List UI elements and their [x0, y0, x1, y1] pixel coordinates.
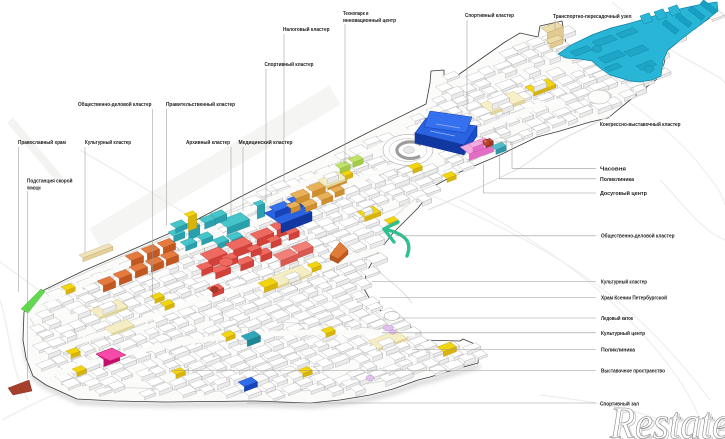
svg-text:Транспортно-пересадочный узел: Транспортно-пересадочный узел	[553, 13, 632, 20]
svg-text:Правительственный кластер: Правительственный кластер	[166, 101, 236, 108]
svg-text:Конгрессно-выставочный кластер: Конгрессно-выставочный кластер	[600, 121, 681, 128]
svg-text:инновационный центр: инновационный центр	[343, 17, 397, 24]
svg-text:помощи: помощи	[27, 185, 41, 191]
svg-text:Культурный кластер: Культурный кластер	[85, 139, 132, 146]
svg-text:Спортивный кластер: Спортивный кластер	[265, 61, 315, 68]
svg-text:Подстанция скорой: Подстанция скорой	[27, 178, 73, 185]
svg-text:Спортивный кластер: Спортивный кластер	[465, 12, 515, 19]
svg-text:Медицинский кластер: Медицинский кластер	[239, 139, 294, 146]
svg-text:Поликлиника: Поликлиника	[600, 177, 635, 183]
svg-text:Поликлиника: Поликлиника	[601, 347, 636, 353]
svg-text:Технопарк и: Технопарк и	[343, 11, 369, 17]
svg-text:Храм Ксении Петербургской: Храм Ксении Петербургской	[601, 295, 667, 302]
svg-text:Часовня: Часовня	[600, 166, 626, 172]
svg-text:Досуговый центр: Досуговый центр	[600, 190, 648, 197]
svg-text:Культурный центр: Культурный центр	[601, 330, 646, 337]
svg-text:Православный храм: Православный храм	[18, 139, 66, 146]
svg-text:Restate: Restate	[609, 398, 725, 439]
svg-text:Общественно-деловой кластер: Общественно-деловой кластер	[78, 101, 152, 108]
svg-text:Ледовый каток: Ледовый каток	[601, 315, 633, 322]
svg-text:Налоговый кластер: Налоговый кластер	[283, 26, 330, 33]
svg-text:Общественно-деловой кластер: Общественно-деловой кластер	[601, 233, 675, 240]
svg-text:Архивный кластер: Архивный кластер	[186, 139, 231, 146]
svg-text:Выставочное пространство: Выставочное пространство	[601, 368, 666, 374]
svg-text:Культурный кластер: Культурный кластер	[601, 278, 648, 285]
